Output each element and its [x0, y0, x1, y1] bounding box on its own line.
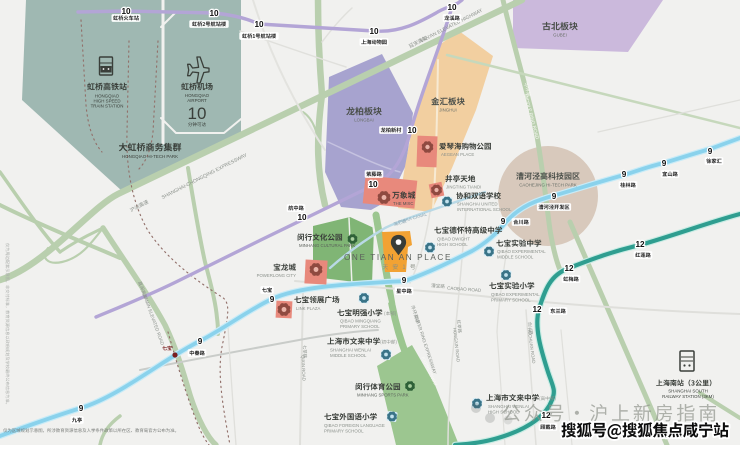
svg-text:HONGQIAO HI-TECH PARK: HONGQIAO HI-TECH PARK	[122, 154, 178, 159]
svg-text:10: 10	[297, 213, 307, 222]
svg-text:10: 10	[121, 7, 131, 16]
svg-text:9: 9	[552, 192, 557, 201]
svg-text:10: 10	[369, 27, 379, 36]
svg-text:LONGBAI: LONGBAI	[354, 118, 374, 123]
svg-text:AEGEAN PLACE: AEGEAN PLACE	[441, 152, 474, 157]
svg-text:QIBAO EXPERIMENTAL: QIBAO EXPERIMENTAL	[497, 249, 546, 254]
svg-text:9: 9	[198, 337, 203, 346]
svg-text:10: 10	[188, 104, 207, 123]
svg-text:POWERLONG CITY: POWERLONG CITY	[257, 273, 297, 278]
svg-text:GUBEI: GUBEI	[553, 33, 567, 38]
svg-text:10: 10	[209, 9, 219, 18]
svg-text:9: 9	[402, 276, 407, 285]
svg-text:10: 10	[254, 20, 264, 29]
svg-text:THE MIXC: THE MIXC	[393, 201, 414, 206]
svg-text:9: 9	[79, 404, 84, 413]
svg-text:9: 9	[270, 295, 275, 304]
svg-text:AIRPORT: AIRPORT	[187, 98, 207, 103]
svg-text:MINHANG CULTURAL PARK: MINHANG CULTURAL PARK	[299, 243, 355, 248]
svg-text:12: 12	[635, 240, 645, 249]
svg-text:12: 12	[532, 305, 542, 314]
svg-text:LINK PLAZA: LINK PLAZA	[296, 306, 320, 311]
svg-text:MINHANG SPORTS PARK: MINHANG SPORTS PARK	[357, 393, 409, 398]
svg-text:10: 10	[368, 180, 378, 189]
svg-text:QIBAO DWIGHT: QIBAO DWIGHT	[437, 237, 470, 242]
svg-text:9: 9	[708, 147, 713, 156]
svg-text:TRAIN STATION: TRAIN STATION	[91, 104, 124, 109]
svg-text:9: 9	[501, 217, 506, 226]
svg-text:ONE TIAN AN PLACE: ONE TIAN AN PLACE	[344, 253, 452, 262]
svg-text:QIBAO EXPERIMENTAL: QIBAO EXPERIMENTAL	[491, 292, 540, 297]
svg-text:PRIMARY SCHOOL: PRIMARY SCHOOL	[324, 429, 364, 434]
svg-text:SHANGHAI SOUTH: SHANGHAI SOUTH	[668, 389, 708, 394]
svg-text:10: 10	[407, 126, 417, 135]
svg-text:10: 10	[447, 3, 457, 12]
svg-text:JINGTING TIANDI: JINGTING TIANDI	[446, 185, 481, 190]
svg-text:SHANGHAI UNITED: SHANGHAI UNITED	[457, 202, 498, 207]
svg-text:RAILWAY STATION (3KM): RAILWAY STATION (3KM)	[662, 394, 714, 399]
svg-text:9: 9	[662, 159, 667, 168]
svg-text:QIBAO FOREIGN LANGUAGE: QIBAO FOREIGN LANGUAGE	[324, 423, 385, 428]
svg-text:JINGHUI: JINGHUI	[439, 108, 457, 113]
svg-text:9: 9	[622, 170, 627, 179]
svg-text:PRIMARY SCHOOL: PRIMARY SCHOOL	[491, 298, 531, 303]
svg-text:MIDDLE SCHOOL: MIDDLE SCHOOL	[497, 255, 534, 260]
svg-text:MIDDLE SCHOOL: MIDDLE SCHOOL	[330, 353, 367, 358]
svg-text:INTERNATIONAL SCHOOL: INTERNATIONAL SCHOOL	[457, 207, 512, 212]
svg-text:PRIMARY SCHOOL: PRIMARY SCHOOL	[340, 324, 380, 329]
svg-text:HIGH SCHOOL: HIGH SCHOOL	[437, 242, 468, 247]
svg-text:12: 12	[564, 264, 574, 273]
svg-text:QIBAO MINGQIANG: QIBAO MINGQIANG	[340, 319, 381, 324]
svg-text:SHANGHAI WENLAI: SHANGHAI WENLAI	[330, 348, 371, 353]
svg-text:CAOHEJING HI-TECH PARK: CAOHEJING HI-TECH PARK	[519, 183, 577, 188]
